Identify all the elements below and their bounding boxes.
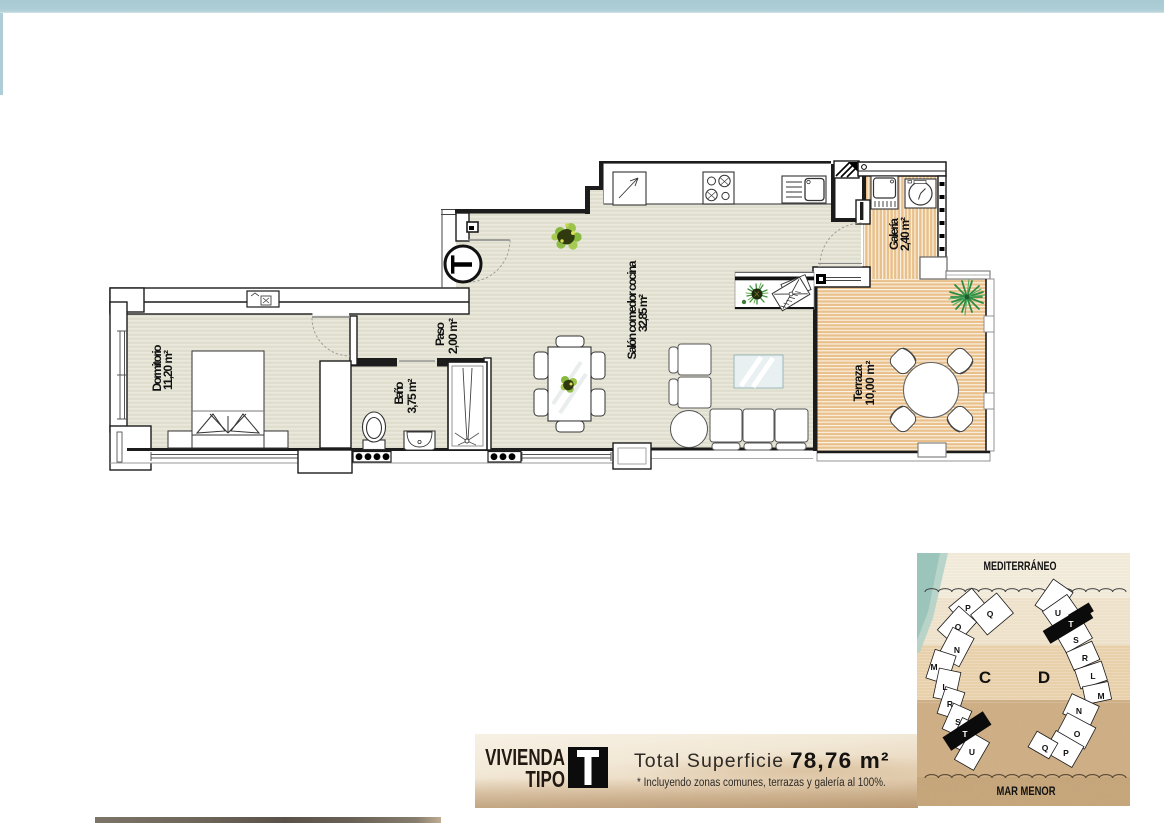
svg-text:P: P (1063, 748, 1069, 758)
svg-text:MAR MENOR: MAR MENOR (997, 786, 1057, 798)
svg-text:U: U (969, 747, 975, 757)
svg-text:T: T (1068, 619, 1074, 629)
svg-text:Paso: Paso (433, 322, 447, 346)
svg-text:R: R (947, 699, 953, 709)
svg-text:32,85 m²: 32,85 m² (636, 294, 650, 332)
svg-text:O: O (1074, 729, 1081, 739)
svg-text:C: C (979, 668, 991, 687)
svg-text:T: T (444, 255, 479, 274)
svg-text:11,20 m²: 11,20 m² (161, 350, 175, 390)
svg-text:2,00 m²: 2,00 m² (446, 318, 460, 354)
svg-text:M: M (930, 662, 937, 672)
svg-text:Q: Q (1042, 743, 1049, 753)
svg-text:Baño: Baño (392, 382, 406, 405)
svg-text:S: S (1073, 635, 1079, 645)
svg-text:10,00 m²: 10,00 m² (863, 361, 877, 406)
svg-text:N: N (954, 645, 960, 655)
svg-text:O: O (955, 622, 962, 632)
svg-text:2,40 m²: 2,40 m² (898, 217, 912, 251)
svg-text:Q: Q (987, 609, 994, 619)
svg-text:L: L (1090, 671, 1095, 681)
svg-text:U: U (1055, 608, 1061, 618)
svg-text:R: R (1082, 653, 1088, 663)
svg-text:3,75 m²: 3,75 m² (405, 379, 419, 414)
svg-text:L: L (942, 682, 947, 692)
svg-text:N: N (1076, 706, 1082, 716)
svg-text:T: T (962, 729, 968, 739)
svg-text:D: D (1038, 668, 1050, 687)
svg-text:M: M (1097, 691, 1104, 701)
svg-text:MEDITERRÁNEO: MEDITERRÁNEO (984, 560, 1057, 573)
svg-text:S: S (955, 717, 961, 727)
svg-text:P: P (965, 603, 971, 613)
